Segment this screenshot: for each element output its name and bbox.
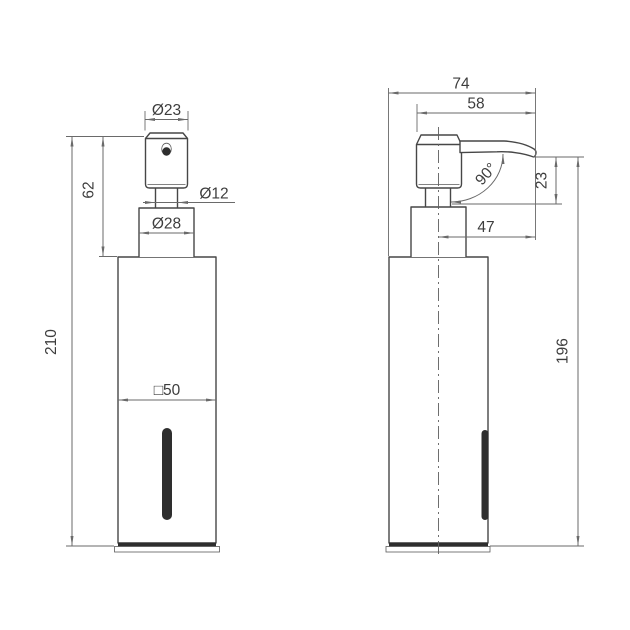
dim-overall-depth-label: 74 bbox=[452, 76, 470, 93]
dim-body-height-label: 196 bbox=[555, 338, 572, 364]
dim-spout-angle-label: 90° bbox=[472, 160, 500, 189]
dim-spout-drop-label: 23 bbox=[534, 172, 551, 189]
side-head-outline bbox=[417, 135, 462, 188]
dim-body-width-label: □50 bbox=[154, 382, 181, 399]
dim-head-to-spout-label: 58 bbox=[467, 96, 484, 113]
side-level-window bbox=[482, 430, 489, 520]
side-spout-outline bbox=[460, 141, 536, 157]
dim-spout-drop: 23 bbox=[534, 157, 557, 204]
front-base-band bbox=[118, 543, 216, 547]
dim-pump-height: 62 bbox=[66, 137, 144, 257]
front-base-plinth bbox=[115, 547, 220, 553]
side-view bbox=[386, 127, 536, 557]
front-head-outline bbox=[146, 133, 188, 188]
dispenser-drawing: Ø23 62 210 Ø12 Ø28 □50 bbox=[0, 0, 630, 630]
dim-body-height: 196 bbox=[555, 157, 579, 546]
dim-spout-reach-label: 47 bbox=[477, 219, 494, 236]
front-nozzle-hole bbox=[162, 147, 170, 155]
front-level-window bbox=[162, 428, 172, 520]
side-base-plinth bbox=[386, 547, 490, 553]
dim-overall-height-label: 210 bbox=[43, 329, 60, 355]
dim-overall-depth: 74 bbox=[389, 76, 536, 94]
technical-drawing-canvas: Ø23 62 210 Ø12 Ø28 □50 bbox=[0, 0, 630, 630]
dim-head-diameter: Ø23 bbox=[145, 102, 188, 131]
dim-pump-height-label: 62 bbox=[81, 181, 98, 198]
dim-pump-height-extensions bbox=[66, 137, 144, 257]
front-stem-outline bbox=[156, 188, 178, 208]
dim-head-to-spout: 58 bbox=[417, 96, 536, 114]
dim-collar-diameter-label: Ø28 bbox=[152, 216, 181, 233]
dim-head-diameter-label: Ø23 bbox=[152, 102, 181, 119]
side-stem-outline bbox=[426, 188, 451, 207]
dim-stem-diameter-label: Ø12 bbox=[199, 186, 228, 203]
